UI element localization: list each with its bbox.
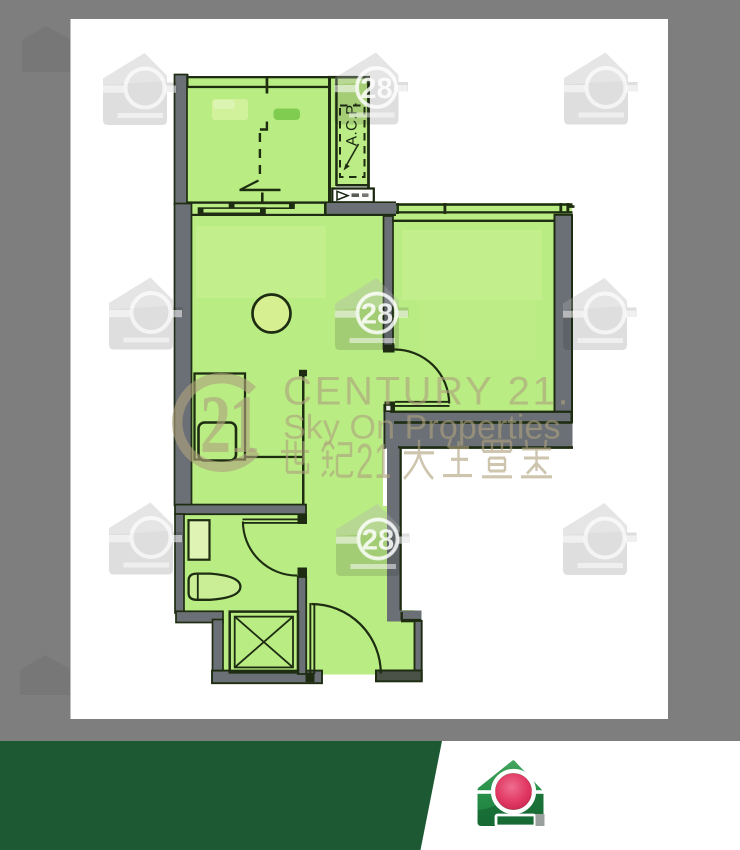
svg-text:Sky On Properties: Sky On Properties	[283, 409, 561, 447]
svg-text:CENTURY 21.: CENTURY 21.	[283, 370, 571, 414]
svg-text:21: 21	[200, 380, 258, 471]
svg-text:21: 21	[356, 435, 392, 490]
